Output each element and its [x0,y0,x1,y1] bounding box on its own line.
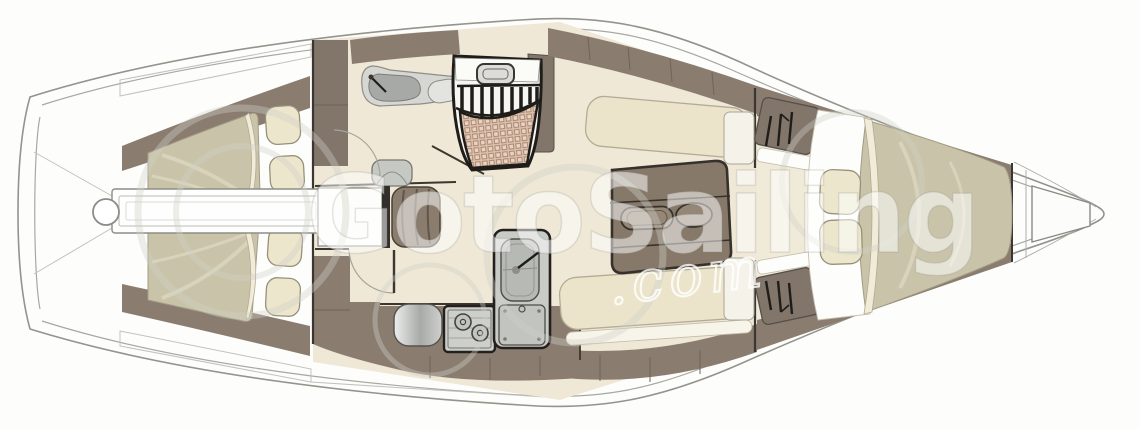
anchor-locker [1032,186,1090,242]
galley-fridge [394,304,442,346]
bow-area [1014,162,1096,263]
port-wardrobe [313,40,348,166]
head-sink-basin [369,74,420,101]
icebox-screw-2 [537,309,541,313]
floor-plan-drawing: GotoSailing .com [0,0,1140,429]
steps-top-rail [457,85,540,86]
stove-burner-1 [455,314,471,330]
yacht-floor-plan: GotoSailing .com [0,0,1140,429]
steering-gear [93,199,119,225]
engine-compartment [93,189,330,233]
icebox-screw-3 [503,337,507,341]
head-faucet-base [369,75,374,80]
